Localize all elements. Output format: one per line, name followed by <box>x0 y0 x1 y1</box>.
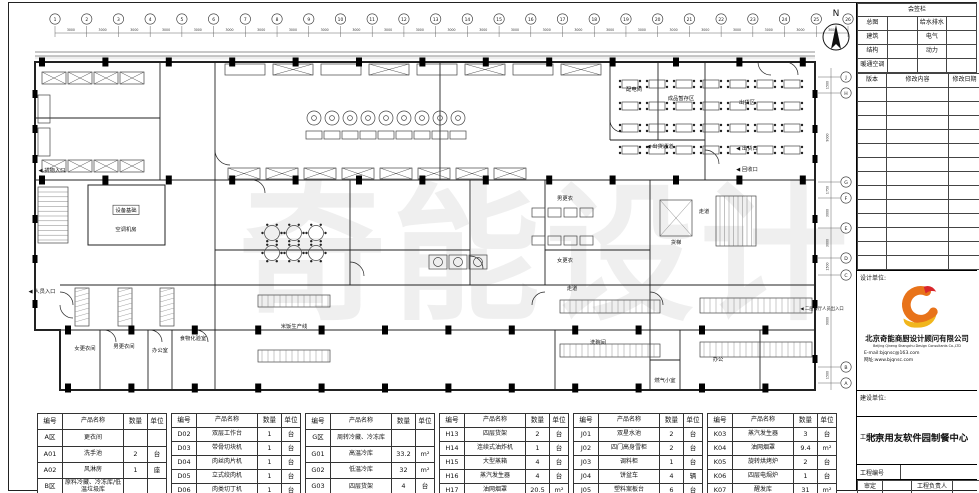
schedule-col-header: 数量 <box>124 414 148 430</box>
equipment-table: 编号产品名称数量单位J01双星水池2台J02四门高身雪柜2台J03调料柜1台J0… <box>573 413 703 493</box>
revision-empty-row <box>858 186 979 200</box>
svg-text:15: 15 <box>496 17 502 23</box>
svg-text:3000: 3000 <box>447 28 455 32</box>
product-name: 四层电焗炉 <box>733 470 794 484</box>
quantity <box>392 430 416 446</box>
unit: 台 <box>818 456 837 470</box>
revision-table: 版本 修改内容 修改日期 <box>857 73 979 270</box>
schedule-col-header: 数量 <box>258 414 282 428</box>
svg-text:3000: 3000 <box>321 28 329 32</box>
svg-text:24: 24 <box>782 17 788 23</box>
revision-empty-row <box>858 214 979 228</box>
svg-text:N: N <box>833 9 840 19</box>
svg-text:17: 17 <box>560 17 566 23</box>
schedule-col-header: 数量 <box>526 414 550 428</box>
unit: 台 <box>148 446 167 462</box>
schedule-row: J05塑料案板台6台 <box>574 484 703 493</box>
svg-text:出货区: 出货区 <box>739 98 756 106</box>
product-name: 调料柜 <box>599 456 660 470</box>
svg-text:3000: 3000 <box>67 28 75 32</box>
quantity: 3 <box>794 428 818 442</box>
schedule-row: G01高温冷库33.2m² <box>306 446 435 462</box>
item-code: A01 <box>38 446 63 462</box>
svg-text:20: 20 <box>655 17 661 23</box>
svg-text:成品暂存区: 成品暂存区 <box>668 94 695 102</box>
company-logo <box>888 282 946 332</box>
schedule-row: A01洗手池2台 <box>38 446 167 462</box>
quantity: 1 <box>258 428 282 442</box>
schedule-row: A区更衣间 <box>38 430 167 446</box>
unit: 台 <box>684 442 703 456</box>
product-name: 原料冷藏、冷冻库/低温垃圾库 <box>63 479 124 493</box>
item-code: D02 <box>172 428 197 442</box>
item-code: D03 <box>172 442 197 456</box>
svg-text:10: 10 <box>338 17 344 23</box>
svg-text:12: 12 <box>401 17 407 23</box>
design-unit-section: 设计单位: 北京奇能商厨设计顾问有限公司 Beijing Qineng Shan… <box>857 270 977 391</box>
quantity: 2 <box>660 442 684 456</box>
svg-text:3000: 3000 <box>765 28 773 32</box>
company-name-cn: 北京奇能商厨设计顾问有限公司 <box>857 333 977 344</box>
item-code: K07 <box>708 484 733 493</box>
product-name: 饼盆车 <box>599 470 660 484</box>
item-code: K06 <box>708 470 733 484</box>
svg-text:3000: 3000 <box>479 28 487 32</box>
equipment-table: 编号产品名称数量单位A区更衣间A01洗手池2台A02风淋房1座B区原料冷藏、冷冻… <box>37 413 167 493</box>
svg-text:7: 7 <box>244 17 247 23</box>
sign-label <box>917 59 947 73</box>
svg-text:21: 21 <box>687 17 693 23</box>
item-code: D04 <box>172 456 197 470</box>
schedule-row: G03四层货架4台 <box>306 479 435 493</box>
item-code: D05 <box>172 470 197 484</box>
svg-text:18: 18 <box>591 17 597 23</box>
schedule-col-header: 产品名称 <box>331 414 392 430</box>
revision-empty-row <box>858 144 979 158</box>
svg-text:女更衣: 女更衣 <box>557 256 574 264</box>
unit: 台 <box>818 428 837 442</box>
product-name: 周转冷藏、冷冻库 <box>331 430 392 446</box>
svg-text:19: 19 <box>623 17 629 23</box>
schedule-col-header: 数量 <box>794 414 818 428</box>
svg-text:◀ 出货口: ◀ 出货口 <box>736 144 758 152</box>
schedule-row: D02双层工作台1台 <box>172 428 301 442</box>
product-name: 旋转烘烤炉 <box>733 456 794 470</box>
svg-text:3000: 3000 <box>162 28 170 32</box>
sign-label: 结构 <box>858 45 888 59</box>
product-name: 带骨切块机 <box>197 442 258 456</box>
product-name: 立式绞肉机 <box>197 470 258 484</box>
schedule-col-header: 产品名称 <box>733 414 794 428</box>
sign-label: 暖通空调 <box>858 59 888 73</box>
revision-empty-row <box>858 172 979 186</box>
svg-text:22: 22 <box>718 17 724 23</box>
build-unit-section: 建设单位: <box>857 391 977 417</box>
schedule-row: J02四门高身雪柜2台 <box>574 442 703 456</box>
schedule-col-header: 编号 <box>306 414 331 430</box>
schedule-col-header: 编号 <box>574 414 599 428</box>
schedule-row: K04油网烟罩9.4m² <box>708 442 837 456</box>
quantity: 20.5 <box>526 484 550 493</box>
schedule-row: J01双星水池2台 <box>574 428 703 442</box>
schedule-row: G02低温冷库32m² <box>306 462 435 478</box>
svg-text:男更衣: 男更衣 <box>557 194 574 202</box>
equipment-table: 编号产品名称数量单位D02双层工作台1台D03带骨切块机1台D04肉丝肉片机1台… <box>171 413 301 493</box>
svg-text:设备基础: 设备基础 <box>115 206 136 214</box>
product-name: 油网烟罩 <box>733 442 794 456</box>
product-name: 连续式油炸机 <box>465 442 526 456</box>
schedule-row: D05立式绞肉机1台 <box>172 470 301 484</box>
unit: 台 <box>416 479 435 493</box>
unit: m² <box>416 462 435 478</box>
product-name: 醒发库 <box>733 484 794 493</box>
product-name: 四层货架 <box>331 479 392 493</box>
unit <box>148 479 167 493</box>
quantity: 1 <box>124 462 148 478</box>
project-number-label: 工程编号 <box>857 465 901 479</box>
svg-text:配电间: 配电间 <box>626 85 642 93</box>
schedule-col-header: 单位 <box>550 414 569 428</box>
item-code: H13 <box>440 428 465 442</box>
svg-text:◀ 出货通道: ◀ 出货通道 <box>647 142 675 150</box>
item-code: A区 <box>38 430 63 446</box>
quantity: 4 <box>526 470 550 484</box>
schedule-col-header: 编号 <box>38 414 63 430</box>
unit: 座 <box>148 462 167 478</box>
schedule-col-header: 单位 <box>282 414 301 428</box>
item-code: G01 <box>306 446 331 462</box>
item-code: J01 <box>574 428 599 442</box>
unit <box>148 430 167 446</box>
svg-text:3000: 3000 <box>257 28 265 32</box>
svg-text:3000: 3000 <box>796 28 804 32</box>
svg-text:1500: 1500 <box>826 371 830 379</box>
svg-text:奇能设计: 奇能设计 <box>238 169 854 341</box>
schedule-row: G区周转冷藏、冷冻库 <box>306 430 435 446</box>
schedule-row: D03带骨切块机1台 <box>172 442 301 456</box>
svg-text:1: 1 <box>54 17 57 23</box>
svg-text:C: C <box>844 273 847 279</box>
unit: 台 <box>282 456 301 470</box>
svg-text:25: 25 <box>813 17 819 23</box>
approval-label: 审定 <box>858 481 883 493</box>
revision-empty-row <box>858 130 979 144</box>
svg-text:◀ 回收口: ◀ 回收口 <box>736 165 758 173</box>
revision-empty-row <box>858 88 979 102</box>
equipment-table: 编号产品名称数量单位K03蒸汽发生器3台K04油网烟罩9.4m²K05旋转烘烤炉… <box>707 413 837 493</box>
svg-text:11: 11 <box>369 17 375 23</box>
unit: 台 <box>818 470 837 484</box>
svg-text:◀ 二层餐厅人员出入口: ◀ 二层餐厅人员出入口 <box>800 305 843 312</box>
item-code: G区 <box>306 430 331 446</box>
item-code: K03 <box>708 428 733 442</box>
product-name: 洗手池 <box>63 446 124 462</box>
schedule-col-header: 产品名称 <box>197 414 258 428</box>
revision-empty-row <box>858 256 979 270</box>
product-name: 肉类切丁机 <box>197 484 258 493</box>
item-code: G02 <box>306 462 331 478</box>
svg-text:1500: 1500 <box>826 81 830 89</box>
build-unit-label: 建设单位: <box>860 393 886 402</box>
unit: 台 <box>550 470 569 484</box>
svg-text:3: 3 <box>117 17 120 23</box>
unit: 台 <box>282 484 301 493</box>
quantity <box>124 479 148 493</box>
schedule-col-header: 单位 <box>148 414 167 430</box>
svg-text:3000: 3000 <box>511 28 519 32</box>
svg-text:6: 6 <box>212 17 215 23</box>
item-code: J03 <box>574 456 599 470</box>
sign-label: 电气 <box>917 31 947 45</box>
schedule-row: B区原料冷藏、冷冻库/低温垃圾库 <box>38 479 167 493</box>
product-name: 高温冷库 <box>331 446 392 462</box>
product-name: 更衣间 <box>63 430 124 446</box>
svg-text:9: 9 <box>307 17 310 23</box>
svg-text:J: J <box>844 75 846 81</box>
quantity: 31 <box>794 484 818 493</box>
revision-empty-row <box>858 102 979 116</box>
sign-label: 动力 <box>917 45 947 59</box>
svg-text:F: F <box>845 196 848 202</box>
company-name-en: Beijing Qineng Shangchu Design Consultan… <box>857 344 977 348</box>
company-website: 网址:www.bjqnsc.com <box>864 357 977 364</box>
svg-text:9000: 9000 <box>826 317 830 325</box>
product-name: 蒸汽发生器 <box>465 470 526 484</box>
product-name: 双星水池 <box>599 428 660 442</box>
svg-text:3000: 3000 <box>826 239 830 247</box>
quantity: 2 <box>660 428 684 442</box>
unit: m² <box>550 484 569 493</box>
schedule-col-header: 数量 <box>392 414 416 430</box>
schedule-row: K03蒸汽发生器3台 <box>708 428 837 442</box>
svg-text:办公室: 办公室 <box>152 346 168 354</box>
item-code: H16 <box>440 470 465 484</box>
unit: 台 <box>684 484 703 493</box>
svg-text:3000: 3000 <box>289 28 297 32</box>
quantity: 32 <box>392 462 416 478</box>
item-code: H17 <box>440 484 465 493</box>
svg-text:3000: 3000 <box>638 28 646 32</box>
schedule-col-header: 编号 <box>172 414 197 428</box>
svg-text:G: G <box>844 180 848 186</box>
svg-text:1500: 1500 <box>826 262 830 270</box>
schedule-col-header: 产品名称 <box>63 414 124 430</box>
quantity: 2 <box>526 428 550 442</box>
svg-text:◀ 人员入口: ◀ 人员入口 <box>29 288 56 295</box>
title-block: 会签栏 总图给水排水 建筑电气 结构动力 暖通空调 版本 修改内容 修改日期 设… <box>856 3 977 490</box>
unit: 台 <box>550 456 569 470</box>
quantity: 1 <box>258 456 282 470</box>
svg-text:办公: 办公 <box>713 355 724 363</box>
schedule-row: H13四层货架2台 <box>440 428 569 442</box>
project-name-label: 工程名称: <box>860 432 886 441</box>
unit: m² <box>818 484 837 493</box>
unit: m² <box>416 446 435 462</box>
revision-empty-row <box>858 116 979 130</box>
unit: 台 <box>684 428 703 442</box>
quantity: 1 <box>660 456 684 470</box>
svg-text:3000: 3000 <box>384 28 392 32</box>
product-name: 低温冷库 <box>331 462 392 478</box>
watermark: 奇能设计 <box>238 169 854 341</box>
svg-text:燃气小室: 燃气小室 <box>654 376 675 384</box>
item-code: H15 <box>440 456 465 470</box>
equipment-table: 编号产品名称数量单位H13四层货架2台H14连续式油炸机1台H15大型蒸箱4台H… <box>439 413 569 493</box>
svg-text:走道: 走道 <box>699 207 710 215</box>
svg-text:H: H <box>844 91 847 97</box>
schedule-col-header: 编号 <box>440 414 465 428</box>
svg-text:3000: 3000 <box>352 28 360 32</box>
schedule-col-header: 单位 <box>416 414 435 430</box>
svg-text:9000: 9000 <box>826 133 830 141</box>
sign-label: 建筑 <box>858 31 888 45</box>
svg-text:E: E <box>845 226 848 232</box>
schedule-row: H16蒸汽发生器4台 <box>440 470 569 484</box>
svg-text:◀ 货物入口: ◀ 货物入口 <box>39 166 66 174</box>
revision-col-header: 修改内容 <box>887 74 949 88</box>
unit: 辆 <box>684 470 703 484</box>
drawing-sheet: 奇能设计 13000230003300043000530006300073000… <box>0 0 979 493</box>
unit <box>416 430 435 446</box>
quantity: 33.2 <box>392 446 416 462</box>
svg-text:B: B <box>844 365 847 371</box>
svg-text:洗碗间: 洗碗间 <box>590 338 606 346</box>
item-code: K05 <box>708 456 733 470</box>
product-name: 四层货架 <box>465 428 526 442</box>
quantity: 1 <box>258 442 282 456</box>
quantity: 2 <box>124 446 148 462</box>
item-code: B区 <box>38 479 63 493</box>
svg-text:1750: 1750 <box>826 186 830 194</box>
svg-text:4: 4 <box>149 17 152 23</box>
revision-col-header: 版本 <box>858 74 887 88</box>
svg-text:8: 8 <box>276 17 279 23</box>
svg-text:2: 2 <box>85 17 88 23</box>
schedule-col-header: 编号 <box>708 414 733 428</box>
svg-text:14: 14 <box>465 17 471 23</box>
svg-text:16: 16 <box>528 17 534 23</box>
item-code: A02 <box>38 462 63 478</box>
company-email: E-mail:bjqnsc@163.com <box>864 350 977 357</box>
quantity: 9.4 <box>794 442 818 456</box>
schedule-col-header: 数量 <box>660 414 684 428</box>
revision-empty-row <box>858 158 979 172</box>
approval-table: 审定工程负责人 审核设计 校对绘图 <box>857 480 979 493</box>
svg-text:3000: 3000 <box>670 28 678 32</box>
unit: 台 <box>684 456 703 470</box>
quantity: 4 <box>526 456 550 470</box>
svg-text:3000: 3000 <box>543 28 551 32</box>
item-code: J04 <box>574 470 599 484</box>
project-number-row: 工程编号 <box>857 465 977 480</box>
svg-text:3000: 3000 <box>99 28 107 32</box>
unit: 台 <box>282 428 301 442</box>
schedule-col-header: 单位 <box>818 414 837 428</box>
schedule-row: H14连续式油炸机1台 <box>440 442 569 456</box>
unit: 台 <box>282 442 301 456</box>
quantity: 4 <box>660 470 684 484</box>
svg-text:货梯: 货梯 <box>671 238 682 246</box>
design-unit-label: 设计单位: <box>860 273 886 282</box>
schedule-row: K07醒发库31m² <box>708 484 837 493</box>
svg-text:3000: 3000 <box>574 28 582 32</box>
schedule-col-header: 单位 <box>684 414 703 428</box>
unit: m² <box>818 442 837 456</box>
svg-text:3000: 3000 <box>701 28 709 32</box>
svg-text:男更衣间: 男更衣间 <box>113 342 134 350</box>
product-name: 风淋房 <box>63 462 124 478</box>
svg-text:3000: 3000 <box>733 28 741 32</box>
product-name: 蒸汽发生器 <box>733 428 794 442</box>
schedule-col-header: 产品名称 <box>465 414 526 428</box>
product-name: 双层工作台 <box>197 428 258 442</box>
schedule-col-header: 产品名称 <box>599 414 660 428</box>
sign-table: 会签栏 总图给水排水 建筑电气 结构动力 暖通空调 <box>857 3 977 73</box>
revision-empty-row <box>858 200 979 214</box>
item-code: J05 <box>574 484 599 493</box>
quantity: 6 <box>660 484 684 493</box>
product-name: 四门高身雪柜 <box>599 442 660 456</box>
item-code: K04 <box>708 442 733 456</box>
svg-text:女更衣间: 女更衣间 <box>74 344 95 352</box>
item-code: J02 <box>574 442 599 456</box>
svg-text:5: 5 <box>180 17 183 23</box>
unit: 台 <box>550 428 569 442</box>
schedule-row: H15大型蒸箱4台 <box>440 456 569 470</box>
project-name-section: 工程名称: 北京用友软件园制餐中心 <box>857 430 977 465</box>
item-code: H14 <box>440 442 465 456</box>
schedule-row: K06四层电焗炉1台 <box>708 470 837 484</box>
revision-empty-row <box>858 242 979 256</box>
svg-text:23: 23 <box>750 17 756 23</box>
product-name: 塑料案板台 <box>599 484 660 493</box>
svg-text:3000: 3000 <box>416 28 424 32</box>
svg-text:空调机房: 空调机房 <box>115 225 136 233</box>
schedule-row: H17油网烟罩20.5m² <box>440 484 569 493</box>
quantity <box>124 430 148 446</box>
revision-empty-row <box>858 228 979 242</box>
svg-text:食物化验室: 食物化验室 <box>180 334 207 342</box>
revision-col-header: 修改日期 <box>949 74 979 88</box>
svg-text:26: 26 <box>845 17 851 23</box>
svg-text:3000: 3000 <box>826 209 830 217</box>
sign-label: 总图 <box>858 17 888 31</box>
sign-table-title: 会签栏 <box>858 4 977 17</box>
schedule-row: J03调料柜1台 <box>574 456 703 470</box>
svg-text:3000: 3000 <box>225 28 233 32</box>
quantity: 4 <box>392 479 416 493</box>
schedule-row: J04饼盆车4辆 <box>574 470 703 484</box>
schedule-row: K05旋转烘烤炉2台 <box>708 456 837 470</box>
schedule-row: D04肉丝肉片机1台 <box>172 456 301 470</box>
quantity: 2 <box>794 456 818 470</box>
equipment-schedule-area: 编号产品名称数量单位A区更衣间A01洗手池2台A02风淋房1座B区原料冷藏、冷冻… <box>37 413 837 493</box>
unit: 台 <box>550 442 569 456</box>
svg-text:米饭生产线: 米饭生产线 <box>281 322 308 330</box>
quantity: 1 <box>794 470 818 484</box>
quantity: 1 <box>526 442 550 456</box>
schedule-row: A02风淋房1座 <box>38 462 167 478</box>
product-name: 肉丝肉片机 <box>197 456 258 470</box>
product-name: 大型蒸箱 <box>465 456 526 470</box>
product-name: 油网烟罩 <box>465 484 526 493</box>
unit: 台 <box>282 470 301 484</box>
quantity: 1 <box>258 484 282 493</box>
approval-label: 工程负责人 <box>912 481 953 493</box>
sign-label: 给水排水 <box>917 17 947 31</box>
item-code: D06 <box>172 484 197 493</box>
equipment-table: 编号产品名称数量单位G区周转冷藏、冷冻库G01高温冷库33.2m²G02低温冷库… <box>305 413 435 493</box>
